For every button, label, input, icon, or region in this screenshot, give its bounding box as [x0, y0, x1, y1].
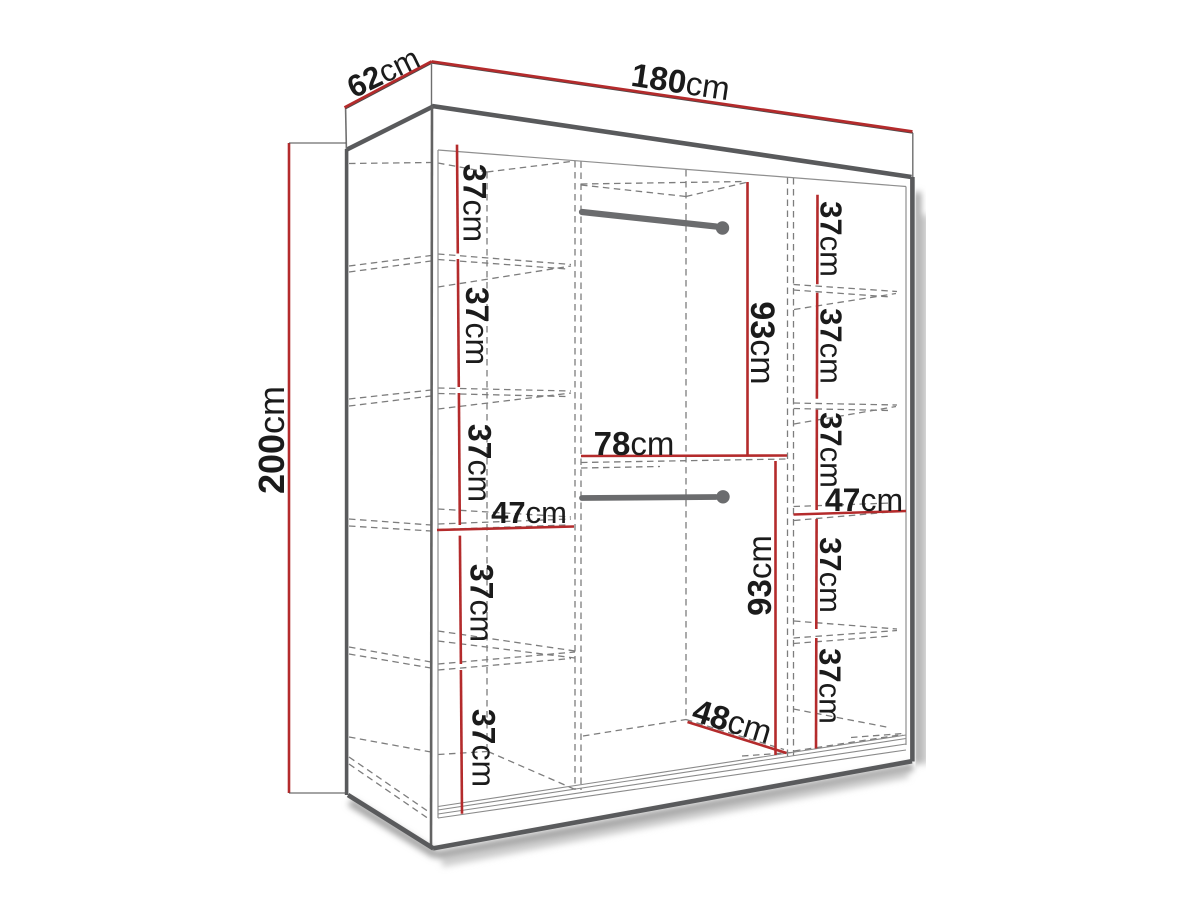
svg-text:37cm: 37cm [813, 537, 848, 613]
svg-text:37cm: 37cm [814, 201, 849, 277]
svg-text:37cm: 37cm [814, 308, 849, 384]
svg-text:200cm: 200cm [251, 386, 292, 494]
svg-text:37cm: 37cm [459, 287, 495, 365]
svg-text:37cm: 37cm [457, 164, 493, 242]
svg-text:37cm: 37cm [464, 564, 500, 642]
svg-text:93cm: 93cm [743, 301, 781, 384]
svg-text:37cm: 37cm [813, 648, 848, 724]
svg-text:78cm: 78cm [594, 425, 675, 462]
svg-text:37cm: 37cm [814, 412, 849, 488]
svg-text:37cm: 37cm [462, 424, 498, 502]
svg-text:47cm: 47cm [825, 482, 903, 518]
svg-text:93cm: 93cm [741, 535, 778, 616]
svg-text:47cm: 47cm [491, 495, 567, 530]
svg-text:37cm: 37cm [466, 709, 502, 787]
